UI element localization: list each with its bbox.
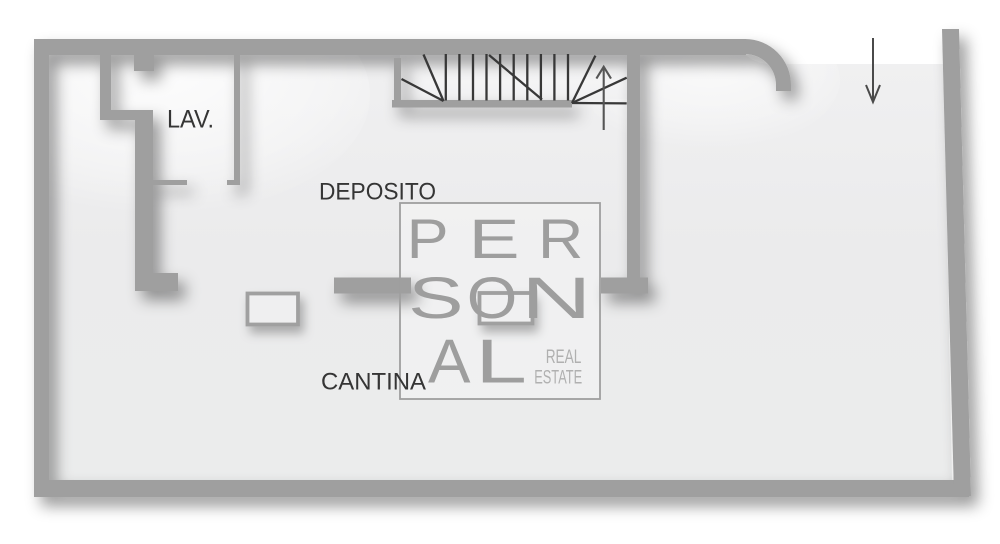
svg-text:R: R bbox=[538, 207, 583, 270]
svg-text:O: O bbox=[467, 266, 518, 331]
svg-text:L: L bbox=[475, 328, 527, 397]
svg-text:P: P bbox=[407, 207, 449, 270]
svg-text:LAV.: LAV. bbox=[167, 106, 214, 134]
svg-text:S: S bbox=[408, 266, 463, 331]
svg-text:N: N bbox=[521, 266, 591, 331]
svg-text:DEPOSITO: DEPOSITO bbox=[319, 179, 436, 206]
svg-text:E: E bbox=[469, 207, 520, 270]
svg-text:CANTINA: CANTINA bbox=[321, 369, 427, 396]
svg-text:ESTATE: ESTATE bbox=[534, 367, 582, 388]
svg-text:A: A bbox=[428, 328, 471, 397]
svg-text:REAL: REAL bbox=[546, 347, 582, 368]
